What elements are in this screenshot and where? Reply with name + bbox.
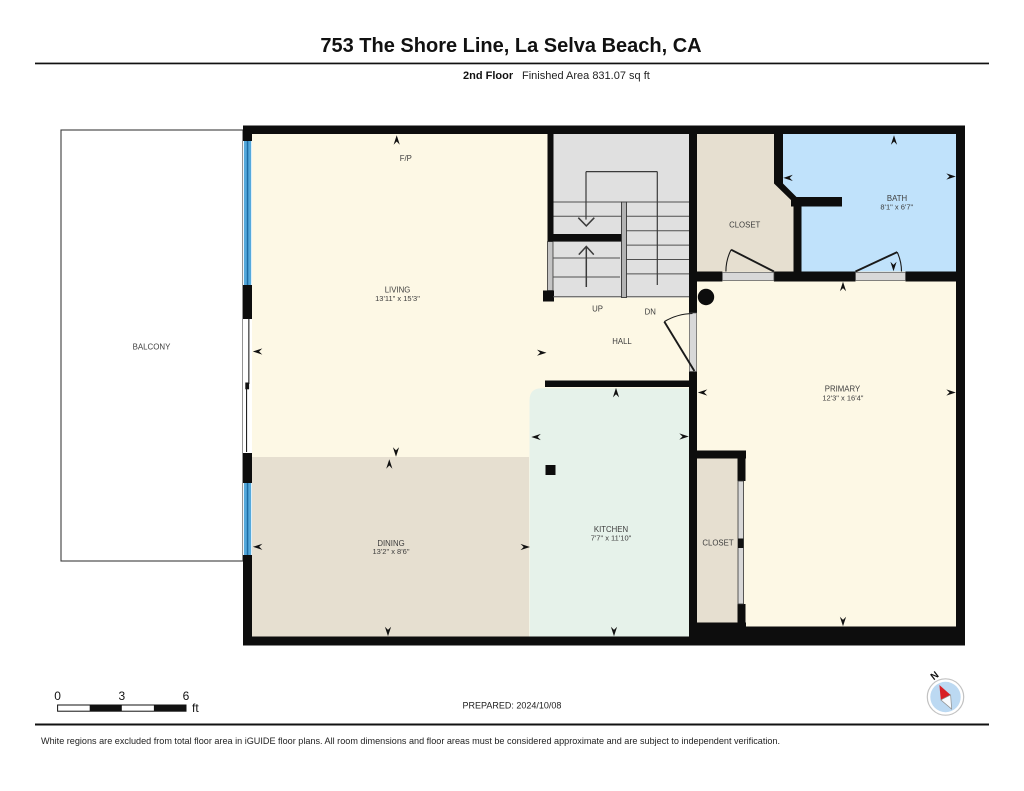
svg-text:UP: UP: [592, 304, 603, 313]
svg-text:PREPARED: 2024/10/08: PREPARED: 2024/10/08: [463, 701, 562, 711]
svg-text:DN: DN: [645, 307, 656, 316]
svg-text:2nd Floor: 2nd Floor: [463, 70, 514, 82]
svg-text:BALCONY: BALCONY: [133, 342, 171, 351]
svg-text:CLOSET: CLOSET: [702, 539, 733, 548]
svg-text:White regions are excluded fro: White regions are excluded from total fl…: [41, 736, 780, 746]
svg-text:0: 0: [54, 689, 61, 703]
svg-text:6: 6: [183, 689, 190, 703]
svg-text:753 The Shore Line, La Selva B: 753 The Shore Line, La Selva Beach, CA: [320, 35, 701, 57]
svg-text:HALL: HALL: [612, 337, 632, 346]
svg-text:3: 3: [118, 689, 125, 703]
svg-text:12'3" x 16'4": 12'3" x 16'4": [822, 394, 863, 403]
svg-text:8'1" x 6'7": 8'1" x 6'7": [880, 202, 913, 211]
svg-text:CLOSET: CLOSET: [729, 221, 760, 230]
svg-text:KITCHEN: KITCHEN: [594, 525, 628, 534]
svg-text:13'11" x 15'3": 13'11" x 15'3": [375, 294, 420, 303]
svg-text:F/P: F/P: [400, 154, 412, 163]
svg-text:7'7" x 11'10": 7'7" x 11'10": [591, 534, 632, 543]
svg-text:PRIMARY: PRIMARY: [825, 385, 861, 394]
svg-text:Finished Area 831.07 sq ft: Finished Area 831.07 sq ft: [522, 70, 650, 82]
svg-text:13'2" x 8'6": 13'2" x 8'6": [373, 547, 410, 556]
svg-text:ft: ft: [192, 701, 199, 715]
